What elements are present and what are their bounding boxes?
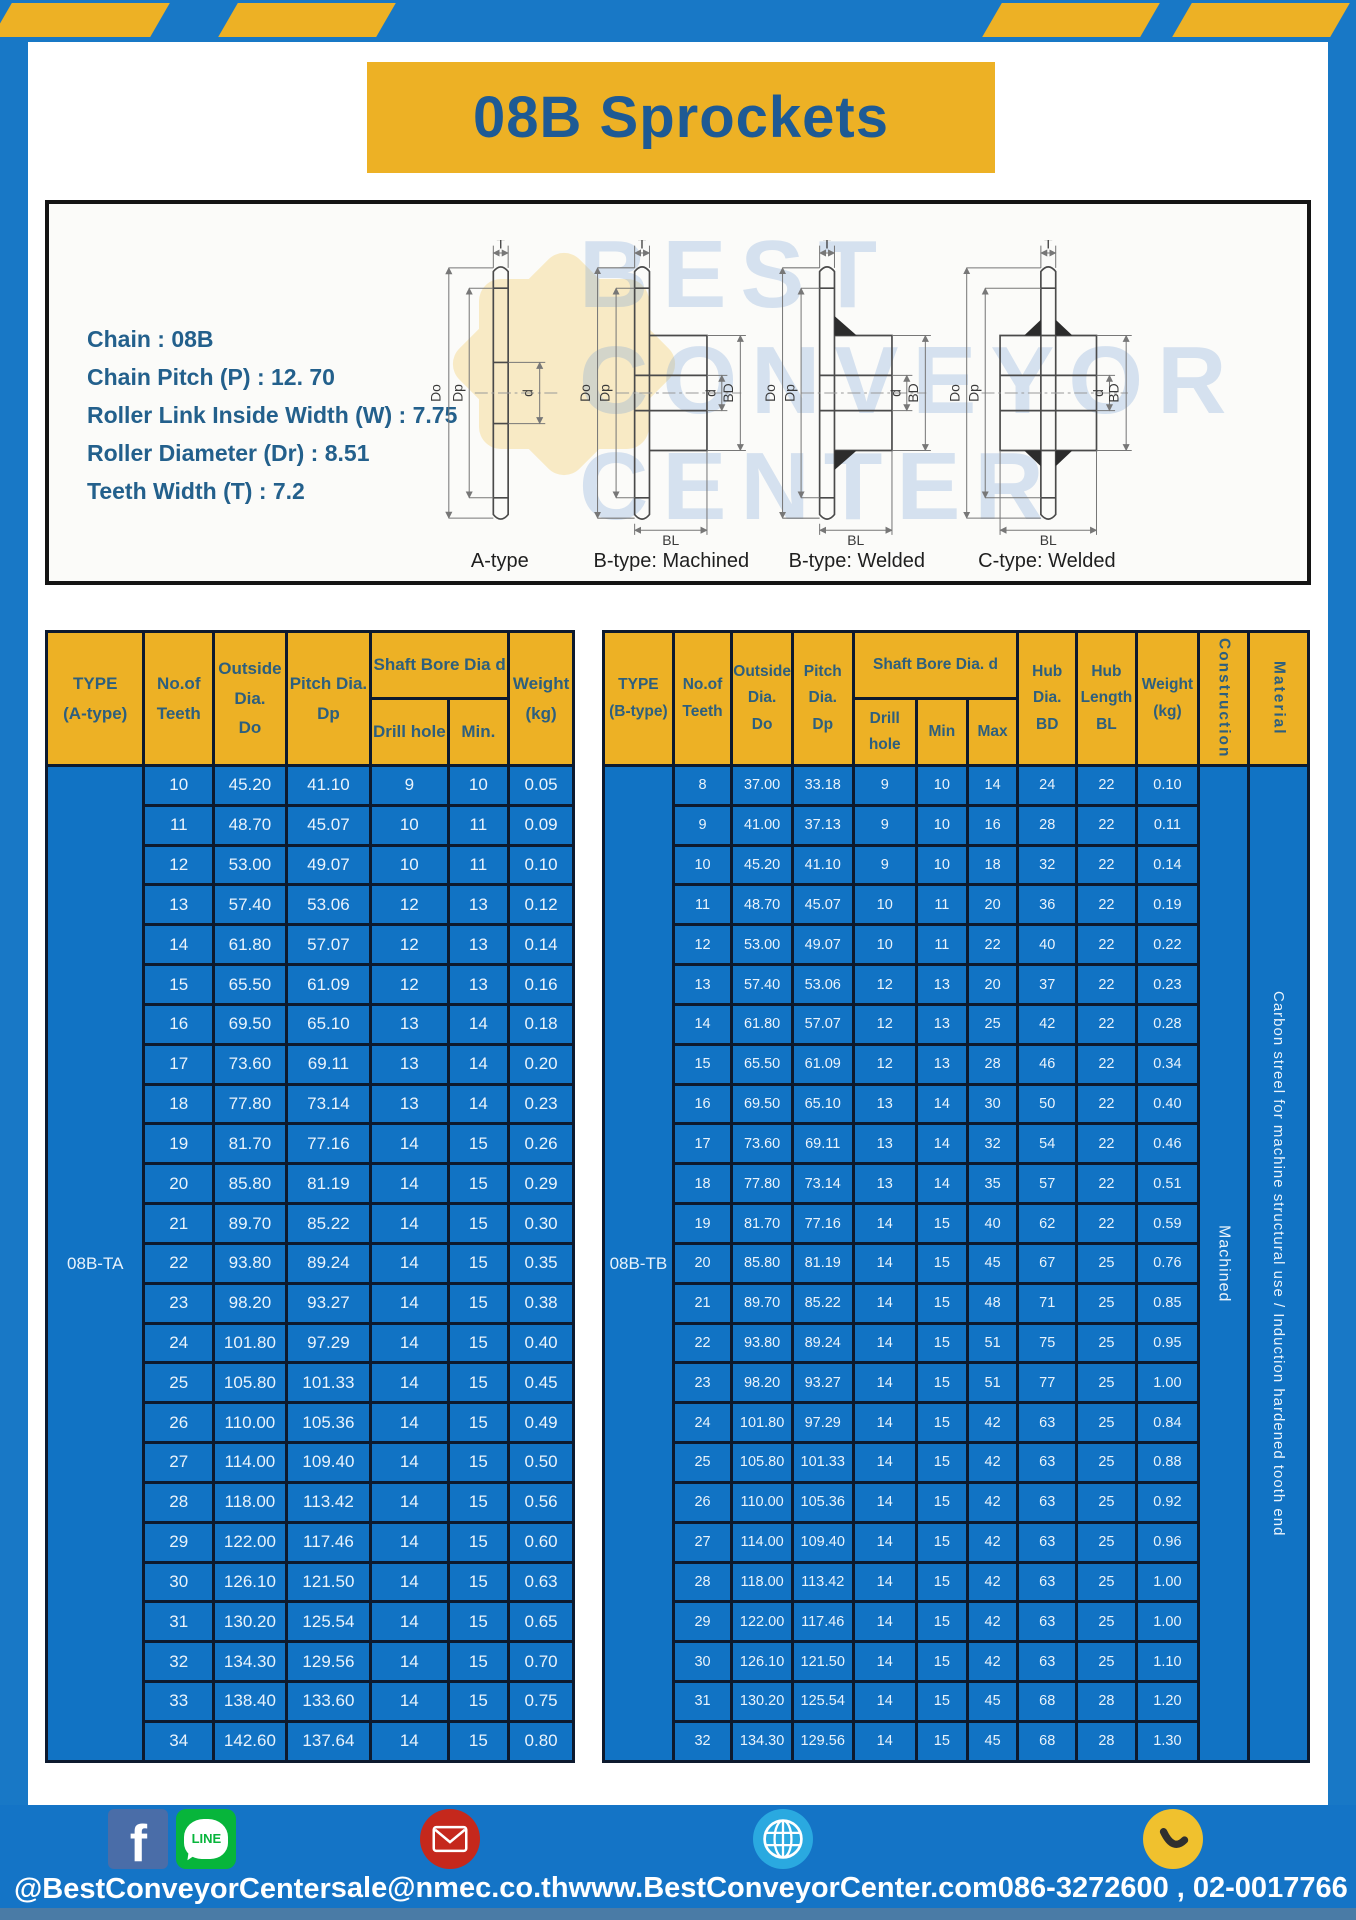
table-cell: 0.34: [1136, 1044, 1198, 1084]
table-cell: 51: [967, 1363, 1018, 1403]
table-cell: 20: [673, 1243, 732, 1283]
table-cell: 14: [916, 1164, 967, 1204]
table-cell: 14: [853, 1363, 916, 1403]
table-cell: 32: [967, 1124, 1018, 1164]
phone-numbers: 086-3272600 , 02-0017766: [998, 1872, 1348, 1905]
table-cell: 41.10: [286, 766, 370, 806]
footer-sections: f LINE @BestConveyorCenter sale@nmec.co.…: [14, 1805, 1342, 1908]
svg-text:BL: BL: [662, 532, 679, 546]
table-cell: 10: [916, 805, 967, 845]
col-header-teeth: No.of Teeth: [144, 632, 214, 766]
table-cell: 28: [673, 1562, 732, 1602]
table-cell: 0.92: [1136, 1482, 1198, 1522]
table-cell: 34: [144, 1721, 214, 1761]
table-cell: 0.05: [509, 766, 574, 806]
table-cell: 25: [1076, 1363, 1136, 1403]
table-cell: 12: [673, 925, 732, 965]
table-cell: 101.33: [792, 1443, 853, 1483]
table-cell: 11: [144, 805, 214, 845]
facebook-icon: f: [108, 1809, 168, 1869]
table-cell: 24: [1018, 766, 1077, 806]
table-cell: 134.30: [214, 1642, 287, 1682]
table-cell: 98.20: [732, 1363, 793, 1403]
table-cell: 61.80: [214, 925, 287, 965]
table-cell: 25: [1076, 1403, 1136, 1443]
table-cell: 126.10: [214, 1562, 287, 1602]
table-cell: 0.09: [509, 805, 574, 845]
table-cell: 25: [144, 1363, 214, 1403]
table-cell: 14: [853, 1602, 916, 1642]
table-cell: 14: [916, 1124, 967, 1164]
svg-text:BL: BL: [1039, 532, 1056, 546]
table-cell: 142.60: [214, 1721, 287, 1761]
table-cell: 32: [1018, 845, 1077, 885]
table-cell: 1.10: [1136, 1642, 1198, 1682]
svg-text:T: T: [1044, 240, 1053, 251]
footer-website: www.BestConveyorCenter.com: [569, 1805, 998, 1908]
table-cell: 0.20: [509, 1044, 574, 1084]
table-cell: 22: [1076, 1084, 1136, 1124]
table-cell: 14: [371, 1403, 448, 1443]
table-cell: 101.80: [732, 1403, 793, 1443]
table-cell: 15: [448, 1682, 509, 1722]
table-cell: 0.49: [509, 1403, 574, 1443]
table-cell: 15: [916, 1204, 967, 1244]
table-cell: 15: [916, 1562, 967, 1602]
svg-text:T: T: [496, 240, 505, 251]
table-cell: 134.30: [732, 1721, 793, 1761]
col-header-shaft-bore: Shaft Bore Dia. d: [853, 632, 1018, 699]
table-cell: 13: [448, 965, 509, 1005]
a-type-section-drawing: T Do Dp d: [421, 240, 579, 546]
table-cell: 117.46: [792, 1602, 853, 1642]
col-header-type: TYPE (A-type): [47, 632, 144, 766]
table-cell: 29: [673, 1602, 732, 1642]
table-cell: 14: [853, 1243, 916, 1283]
table-cell: 14: [371, 1323, 448, 1363]
catalog-page: 08B Sprockets BEST CONVEYOR CENTER Chain…: [0, 0, 1356, 1920]
drawing-caption: B-type: Machined: [594, 550, 750, 573]
table-cell: 48: [967, 1283, 1018, 1323]
table-cell: 0.46: [1136, 1124, 1198, 1164]
table-cell: 53.00: [214, 845, 287, 885]
table-cell: 0.30: [509, 1204, 574, 1244]
table-cell: 121.50: [792, 1642, 853, 1682]
type-cell-08b-ta: 08B-TA: [47, 766, 144, 1762]
svg-text:d: d: [702, 389, 718, 397]
table-cell: 15: [448, 1443, 509, 1483]
table-cell: 67: [1018, 1243, 1077, 1283]
table-cell: 0.18: [509, 1004, 574, 1044]
table-cell: 14: [853, 1443, 916, 1483]
table-cell: 14: [371, 1522, 448, 1562]
table-cell: 45.07: [286, 805, 370, 845]
table-cell: 22: [144, 1243, 214, 1283]
drawing-caption: B-type: Welded: [789, 550, 925, 573]
table-cell: 121.50: [286, 1562, 370, 1602]
table-cell: 65.50: [214, 965, 287, 1005]
table-cell: 10: [673, 845, 732, 885]
table-cell: 22: [1076, 805, 1136, 845]
table-cell: 53.06: [286, 885, 370, 925]
table-cell: 15: [916, 1403, 967, 1443]
table-cell: 10: [448, 766, 509, 806]
svg-text:T: T: [637, 240, 646, 251]
table-cell: 85.80: [732, 1243, 793, 1283]
table-cell: 13: [916, 965, 967, 1005]
table-cell: 14: [448, 1044, 509, 1084]
table-cell: 1.00: [1136, 1602, 1198, 1642]
table-cell: 14: [371, 1363, 448, 1403]
table-cell: 14: [371, 1721, 448, 1761]
table-cell: 0.84: [1136, 1403, 1198, 1443]
table-cell: 14: [853, 1283, 916, 1323]
table-cell: 69.11: [286, 1044, 370, 1084]
table-cell: 12: [371, 965, 448, 1005]
table-cell: 25: [1076, 1482, 1136, 1522]
table-cell: 81.19: [286, 1164, 370, 1204]
website-url: www.BestConveyorCenter.com: [569, 1872, 998, 1905]
table-cell: 28: [1018, 805, 1077, 845]
svg-text:BD: BD: [905, 383, 921, 402]
table-cell: 11: [448, 805, 509, 845]
table-cell: 14: [371, 1562, 448, 1602]
table-cell: 0.23: [509, 1084, 574, 1124]
table-cell: 0.95: [1136, 1323, 1198, 1363]
table-cell: 13: [673, 965, 732, 1005]
table-cell: 0.22: [1136, 925, 1198, 965]
table-cell: 36: [1018, 885, 1077, 925]
table-cell: 19: [673, 1204, 732, 1244]
table-cell: 73.60: [732, 1124, 793, 1164]
table-cell: 0.10: [1136, 766, 1198, 806]
col-header-hub-length: Hub Length BL: [1076, 632, 1136, 766]
table-cell: 12: [371, 885, 448, 925]
col-header-max: Max: [967, 699, 1018, 766]
table-cell: 18: [673, 1164, 732, 1204]
table-cell: 51: [967, 1323, 1018, 1363]
table-cell: 25: [1076, 1283, 1136, 1323]
table-cell: 129.56: [792, 1721, 853, 1761]
table-cell: 28: [1076, 1682, 1136, 1722]
drawing-c-type-welded: T Do Dp d BD: [950, 212, 1145, 577]
table-cell: 125.54: [286, 1602, 370, 1642]
table-cell: 0.88: [1136, 1443, 1198, 1483]
drawing-caption: A-type: [471, 550, 529, 573]
table-cell: 15: [916, 1482, 967, 1522]
table-cell: 77.80: [732, 1164, 793, 1204]
table-cell: 97.29: [792, 1403, 853, 1443]
table-cell: 13: [371, 1084, 448, 1124]
table-cell: 45: [967, 1721, 1018, 1761]
table-cell: 12: [853, 965, 916, 1005]
drawing-a-type: T Do Dp d A-type: [421, 212, 579, 577]
table-cell: 0.80: [509, 1721, 574, 1761]
table-cell: 0.50: [509, 1443, 574, 1483]
table-cell: 12: [144, 845, 214, 885]
table-cell: 129.56: [286, 1642, 370, 1682]
table-cell: 0.19: [1136, 885, 1198, 925]
table-cell: 11: [673, 885, 732, 925]
table-cell: 13: [853, 1164, 916, 1204]
table-cell: 0.76: [1136, 1243, 1198, 1283]
table-cell: 57: [1018, 1164, 1077, 1204]
table-cell: 29: [144, 1522, 214, 1562]
table-cell: 13: [916, 1004, 967, 1044]
table-cell: 15: [448, 1323, 509, 1363]
table-cell: 57.07: [792, 1004, 853, 1044]
table-cell: 109.40: [286, 1443, 370, 1483]
table-cell: 15: [916, 1682, 967, 1722]
col-header-teeth: No.of Teeth: [673, 632, 732, 766]
table-cell: 133.60: [286, 1682, 370, 1722]
table-cell: 48.70: [732, 885, 793, 925]
table-row: 08B-TB837.0033.189101424220.10MachinedCa…: [604, 766, 1309, 806]
table-cell: 101.33: [286, 1363, 370, 1403]
table-cell: 93.80: [732, 1323, 793, 1363]
content-sheet: 08B Sprockets BEST CONVEYOR CENTER Chain…: [28, 42, 1328, 1805]
table-cell: 0.63: [509, 1562, 574, 1602]
table-cell: 14: [853, 1482, 916, 1522]
title-banner: 08B Sprockets: [367, 62, 995, 173]
mail-icon: [420, 1809, 480, 1869]
bottom-strip: [0, 1908, 1356, 1920]
table-cell: 11: [448, 845, 509, 885]
table-cell: 14: [371, 1482, 448, 1522]
table-cell: 0.51: [1136, 1164, 1198, 1204]
table-cell: 12: [853, 1044, 916, 1084]
table-cell: 14: [144, 925, 214, 965]
table-cell: 46: [1018, 1044, 1077, 1084]
table-cell: 33.18: [792, 766, 853, 806]
table-cell: 138.40: [214, 1682, 287, 1722]
table-cell: 23: [144, 1283, 214, 1323]
table-cell: 65.10: [792, 1084, 853, 1124]
col-header-hub-dia: Hub Dia. BD: [1018, 632, 1077, 766]
table-cell: 15: [448, 1721, 509, 1761]
table-cell: 42: [967, 1642, 1018, 1682]
type-cell-08b-tb: 08B-TB: [604, 766, 674, 1762]
globe-icon: [753, 1809, 813, 1869]
col-header-material: Material: [1248, 632, 1308, 766]
table-cell: 73.14: [286, 1084, 370, 1124]
table-cell: 81.70: [732, 1204, 793, 1244]
col-header-min: Min: [916, 699, 967, 766]
table-cell: 33: [144, 1682, 214, 1722]
svg-text:Dp: Dp: [782, 384, 798, 402]
table-cell: 1.30: [1136, 1721, 1198, 1761]
table-cell: 0.65: [509, 1602, 574, 1642]
table-cell: 118.00: [214, 1482, 287, 1522]
table-cell: 20: [967, 965, 1018, 1005]
table-cell: 77.16: [792, 1204, 853, 1244]
table-cell: 37.00: [732, 766, 793, 806]
table-cell: 126.10: [732, 1642, 793, 1682]
table-cell: 13: [371, 1044, 448, 1084]
table-cell: 105.36: [286, 1403, 370, 1443]
table-cell: 15: [448, 1602, 509, 1642]
table-cell: 14: [853, 1642, 916, 1682]
table-cell: 63: [1018, 1602, 1077, 1642]
table-cell: 0.12: [509, 885, 574, 925]
table-cell: 61.80: [732, 1004, 793, 1044]
b-type-table: TYPE (B-type) No.of Teeth Outside Dia. D…: [602, 630, 1310, 1763]
table-cell: 0.14: [509, 925, 574, 965]
svg-text:BD: BD: [720, 383, 736, 402]
table-cell: 97.29: [286, 1323, 370, 1363]
table-cell: 45.20: [732, 845, 793, 885]
table-cell: 15: [916, 1443, 967, 1483]
table-cell: 15: [448, 1204, 509, 1244]
contact-footer: f LINE @BestConveyorCenter sale@nmec.co.…: [0, 1805, 1356, 1920]
table-cell: 31: [673, 1682, 732, 1722]
table-cell: 63: [1018, 1562, 1077, 1602]
table-cell: 93.27: [286, 1283, 370, 1323]
table-cell: 81.70: [214, 1124, 287, 1164]
table-cell: 25: [967, 1004, 1018, 1044]
svg-text:T: T: [823, 240, 832, 251]
table-cell: 16: [967, 805, 1018, 845]
table-cell: 10: [371, 845, 448, 885]
table-cell: 93.80: [214, 1243, 287, 1283]
drawing-b-type-welded: T Do Dp d BD: [764, 212, 949, 577]
b-type-machined-section-drawing: T Do Dp d BD: [579, 240, 764, 546]
table-cell: 53.06: [792, 965, 853, 1005]
table-cell: 10: [371, 805, 448, 845]
table-cell: 0.14: [1136, 845, 1198, 885]
table-cell: 0.96: [1136, 1522, 1198, 1562]
table-cell: 45.20: [214, 766, 287, 806]
table-cell: 0.40: [1136, 1084, 1198, 1124]
table-cell: 10: [853, 925, 916, 965]
social-handle: @BestConveyorCenter: [14, 1873, 331, 1906]
table-cell: 0.45: [509, 1363, 574, 1403]
table-cell: 25: [1076, 1522, 1136, 1562]
table-cell: 0.75: [509, 1682, 574, 1722]
table-cell: 0.70: [509, 1642, 574, 1682]
table-cell: 42: [967, 1443, 1018, 1483]
table-cell: 14: [371, 1682, 448, 1722]
table-cell: 110.00: [732, 1482, 793, 1522]
table-cell: 22: [1076, 845, 1136, 885]
table-cell: 65.50: [732, 1044, 793, 1084]
table-cell: 25: [1076, 1642, 1136, 1682]
table-cell: 14: [853, 1522, 916, 1562]
table-cell: 63: [1018, 1443, 1077, 1483]
table-cell: 14: [371, 1124, 448, 1164]
col-header-weight: Weight (kg): [509, 632, 574, 766]
table-cell: 42: [967, 1562, 1018, 1602]
table-cell: 15: [448, 1642, 509, 1682]
table-cell: 0.56: [509, 1482, 574, 1522]
col-header-pitch-dia: Pitch Dia. Dp: [286, 632, 370, 766]
line-icon: LINE: [176, 1809, 236, 1869]
table-cell: 0.11: [1136, 805, 1198, 845]
table-cell: 0.85: [1136, 1283, 1198, 1323]
table-cell: 21: [673, 1283, 732, 1323]
table-cell: 10: [853, 885, 916, 925]
table-cell: 105.80: [732, 1443, 793, 1483]
table-cell: 13: [448, 925, 509, 965]
table-cell: 71: [1018, 1283, 1077, 1323]
col-header-drill-hole: Drill hole: [853, 699, 916, 766]
table-cell: 22: [1076, 1164, 1136, 1204]
email-address: sale@nmec.co.th: [331, 1872, 569, 1905]
drawing-caption: C-type: Welded: [978, 550, 1115, 573]
table-cell: 14: [371, 1204, 448, 1244]
top-decor-bar: [0, 0, 1356, 42]
table-cell: 27: [673, 1522, 732, 1562]
table-cell: 69.50: [732, 1084, 793, 1124]
table-cell: 75: [1018, 1323, 1077, 1363]
table-cell: 113.42: [792, 1562, 853, 1602]
table-cell: 137.64: [286, 1721, 370, 1761]
table-cell: 37: [1018, 965, 1077, 1005]
table-cell: 18: [967, 845, 1018, 885]
table-cell: 17: [144, 1044, 214, 1084]
b-type-welded-section-drawing: T Do Dp d BD: [764, 240, 949, 546]
footer-phone: 086-3272600 , 02-0017766: [998, 1805, 1348, 1908]
table-cell: 89.70: [732, 1283, 793, 1323]
table-cell: 22: [1076, 925, 1136, 965]
table-cell: 15: [144, 965, 214, 1005]
table-cell: 14: [853, 1682, 916, 1722]
svg-text:Dp: Dp: [965, 384, 981, 402]
table-cell: 57.40: [214, 885, 287, 925]
table-cell: 14: [853, 1323, 916, 1363]
table-cell: 15: [673, 1044, 732, 1084]
table-cell: 9: [853, 845, 916, 885]
table-cell: 28: [144, 1482, 214, 1522]
table-cell: 0.10: [509, 845, 574, 885]
table-row: 08B-TA1045.2041.109100.05: [47, 766, 574, 806]
table-cell: 9: [853, 805, 916, 845]
table-cell: 122.00: [214, 1522, 287, 1562]
table-cell: 15: [916, 1522, 967, 1562]
col-header-type: TYPE (B-type): [604, 632, 674, 766]
table-cell: 22: [1076, 766, 1136, 806]
table-cell: 68: [1018, 1721, 1077, 1761]
table-cell: 0.35: [509, 1243, 574, 1283]
table-cell: 30: [673, 1642, 732, 1682]
sprocket-drawings: T Do Dp d A-type: [421, 212, 1127, 577]
table-cell: 25: [1076, 1243, 1136, 1283]
svg-text:Dp: Dp: [596, 384, 612, 402]
table-cell: 22: [1076, 1204, 1136, 1244]
table-cell: 15: [916, 1602, 967, 1642]
table-cell: 77.80: [214, 1084, 287, 1124]
table-cell: 19: [144, 1124, 214, 1164]
table-cell: 0.16: [509, 965, 574, 1005]
table-cell: 14: [371, 1642, 448, 1682]
table-cell: 73.60: [214, 1044, 287, 1084]
table-cell: 42: [1018, 1004, 1077, 1044]
table-cell: 125.54: [792, 1682, 853, 1722]
table-cell: 28: [967, 1044, 1018, 1084]
table-cell: 11: [916, 925, 967, 965]
table-cell: 30: [144, 1562, 214, 1602]
table-cell: 1.00: [1136, 1562, 1198, 1602]
table-cell: 69.11: [792, 1124, 853, 1164]
table-cell: 14: [448, 1084, 509, 1124]
table-cell: 81.19: [792, 1243, 853, 1283]
table-cell: 25: [1076, 1562, 1136, 1602]
table-cell: 14: [371, 1602, 448, 1642]
table-cell: 22: [673, 1323, 732, 1363]
table-cell: 110.00: [214, 1403, 287, 1443]
table-cell: 26: [144, 1403, 214, 1443]
col-header-construction: Construction: [1198, 632, 1248, 766]
